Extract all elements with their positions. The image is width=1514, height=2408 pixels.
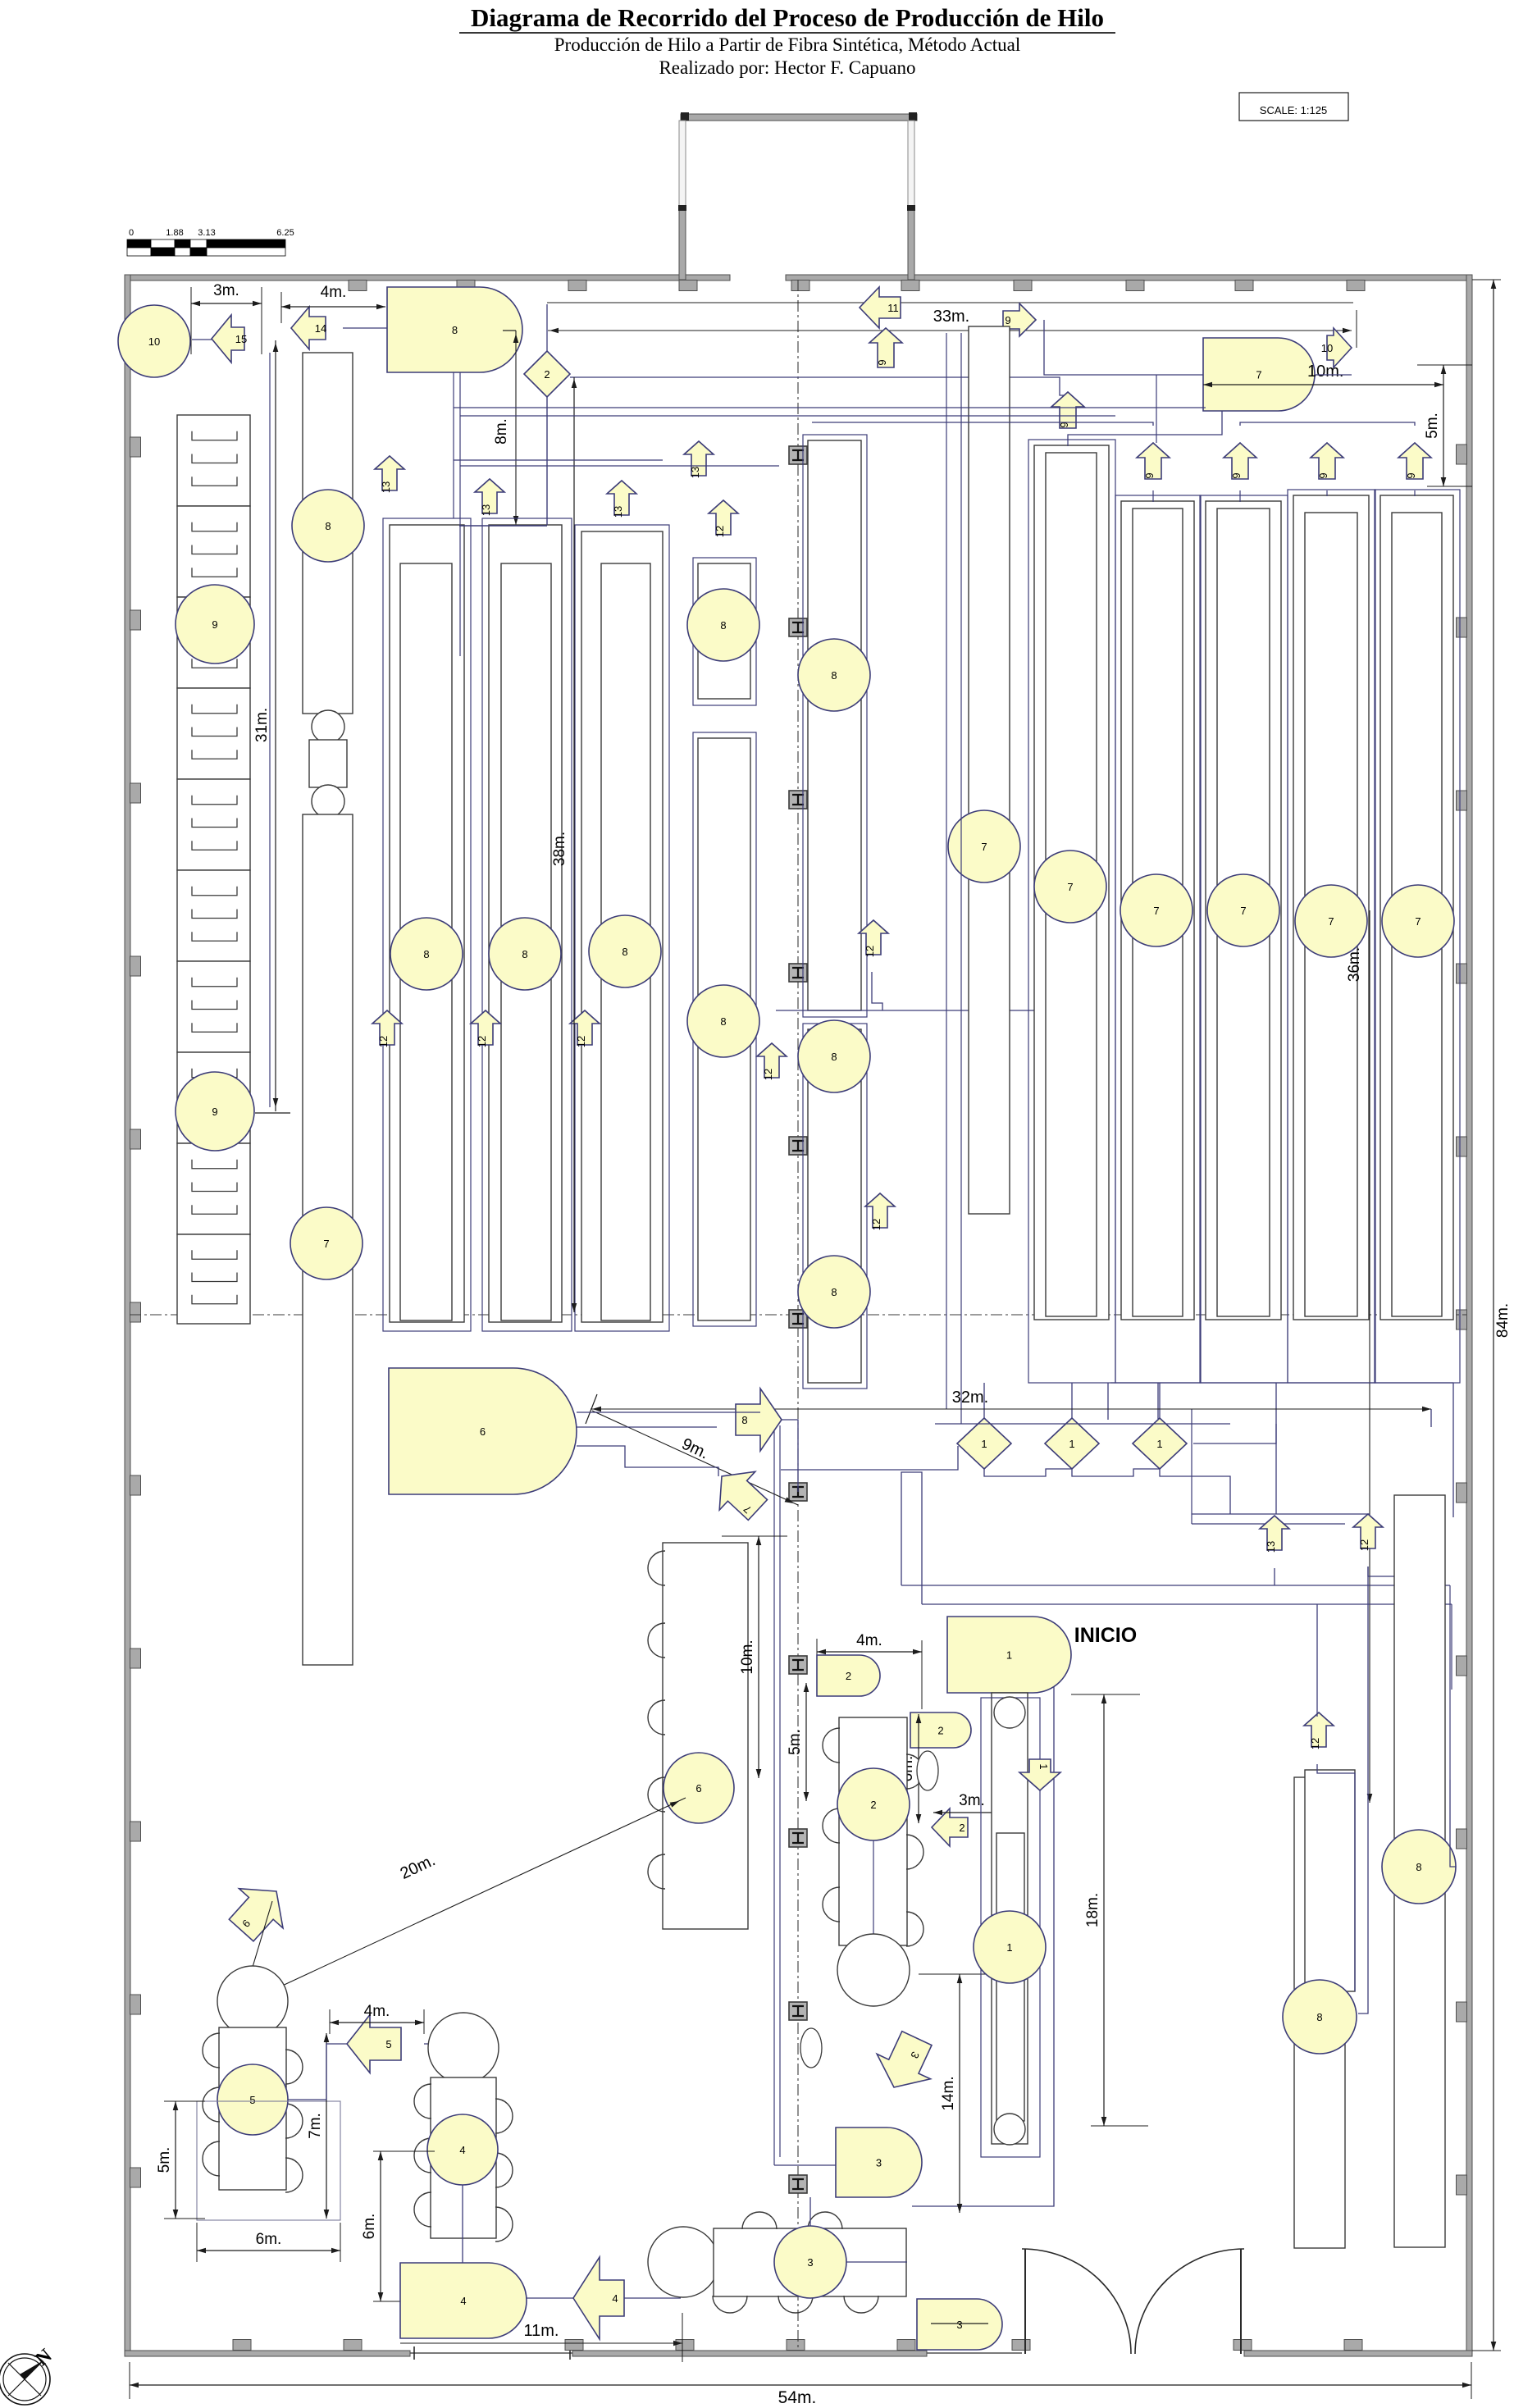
svg-text:11: 11 [887, 302, 899, 314]
svg-text:7: 7 [981, 841, 987, 853]
svg-text:13: 13 [612, 506, 624, 518]
svg-text:8: 8 [720, 619, 726, 632]
svg-text:8: 8 [452, 324, 458, 336]
svg-text:13: 13 [480, 504, 492, 516]
svg-text:8: 8 [720, 1015, 726, 1028]
svg-text:3.13: 3.13 [198, 228, 215, 238]
svg-text:13: 13 [1265, 1541, 1277, 1553]
svg-text:7: 7 [1153, 905, 1159, 917]
svg-text:7: 7 [323, 1238, 329, 1250]
svg-text:6: 6 [695, 1782, 701, 1795]
svg-text:8: 8 [325, 520, 331, 532]
svg-text:8: 8 [423, 948, 429, 960]
svg-text:1.88: 1.88 [166, 228, 183, 238]
svg-text:2: 2 [846, 1670, 851, 1682]
svg-text:9: 9 [212, 1106, 217, 1118]
svg-text:12: 12 [762, 1069, 774, 1080]
svg-text:4: 4 [459, 2144, 465, 2156]
svg-text:5: 5 [249, 2094, 255, 2106]
svg-text:33m.: 33m. [933, 308, 969, 326]
svg-text:12: 12 [476, 1036, 488, 1047]
svg-text:54m.: 54m. [778, 2388, 817, 2407]
svg-text:3: 3 [876, 2157, 882, 2169]
svg-text:5m.: 5m. [1424, 413, 1441, 439]
svg-text:8: 8 [1316, 2011, 1322, 2023]
svg-text:4m.: 4m. [856, 1632, 882, 1649]
svg-text:8m.: 8m. [493, 418, 510, 445]
svg-text:13: 13 [689, 467, 701, 478]
svg-text:3: 3 [807, 2256, 813, 2269]
svg-text:9: 9 [1405, 472, 1417, 478]
svg-text:0: 0 [129, 228, 134, 238]
svg-text:9: 9 [1230, 472, 1243, 478]
svg-text:9: 9 [876, 359, 888, 365]
svg-text:10: 10 [1321, 342, 1333, 354]
svg-text:INICIO: INICIO [1074, 1624, 1137, 1647]
svg-text:8: 8 [1416, 1861, 1421, 1873]
svg-text:Realizado por: Hector F. Capua: Realizado por: Hector F. Capuano [659, 57, 915, 78]
svg-text:2: 2 [959, 1822, 964, 1834]
svg-text:6m.: 6m. [361, 2214, 378, 2240]
svg-text:15: 15 [235, 333, 247, 345]
svg-text:1: 1 [1006, 1649, 1012, 1662]
svg-text:6m.: 6m. [256, 2231, 282, 2248]
svg-text:12: 12 [1358, 1539, 1370, 1551]
svg-text:9: 9 [1317, 472, 1329, 478]
svg-text:36m.: 36m. [1346, 947, 1363, 982]
svg-text:4: 4 [612, 2292, 618, 2305]
svg-text:8: 8 [831, 1051, 837, 1063]
svg-text:31m.: 31m. [253, 708, 271, 742]
svg-text:3: 3 [956, 2319, 962, 2331]
svg-text:12: 12 [575, 1036, 587, 1047]
svg-text:9: 9 [1005, 314, 1010, 326]
svg-text:7m.: 7m. [307, 2113, 324, 2139]
svg-text:Producción de Hilo a Partir de: Producción de Hilo a Partir de Fibra Sin… [554, 34, 1021, 55]
svg-text:Diagrama de Recorrido del Proc: Diagrama de Recorrido del Proceso de Pro… [471, 3, 1104, 32]
svg-text:1: 1 [1069, 1438, 1074, 1450]
svg-text:4m.: 4m. [364, 2003, 390, 2020]
svg-text:8: 8 [522, 948, 527, 960]
svg-text:5m.: 5m. [787, 1729, 804, 1755]
svg-text:12: 12 [377, 1036, 390, 1047]
svg-text:10m.: 10m. [1307, 363, 1343, 381]
svg-text:10: 10 [148, 335, 160, 348]
svg-text:7: 7 [1415, 915, 1421, 928]
svg-text:14m.: 14m. [940, 2076, 957, 2110]
svg-text:13: 13 [380, 481, 392, 493]
svg-text:1: 1 [1006, 1941, 1012, 1954]
svg-text:11m.: 11m. [524, 2322, 559, 2340]
svg-text:10m.: 10m. [739, 1640, 756, 1674]
svg-text:8: 8 [831, 1286, 837, 1298]
svg-text:4: 4 [460, 2295, 466, 2307]
svg-text:1: 1 [1156, 1438, 1162, 1450]
svg-text:12: 12 [1309, 1738, 1321, 1749]
svg-text:12: 12 [864, 946, 876, 957]
svg-text:38m.: 38m. [551, 832, 568, 866]
svg-text:SCALE: 1:125: SCALE: 1:125 [1260, 104, 1327, 116]
svg-text:2: 2 [870, 1799, 876, 1811]
svg-text:6.25: 6.25 [276, 228, 294, 238]
svg-text:3m.: 3m. [213, 282, 239, 299]
svg-text:32m.: 32m. [952, 1389, 988, 1407]
svg-text:8: 8 [622, 946, 627, 958]
svg-text:7: 7 [1328, 915, 1334, 928]
svg-text:4m.: 4m. [321, 284, 347, 301]
svg-text:1: 1 [1037, 1763, 1050, 1769]
svg-text:2: 2 [937, 1725, 943, 1737]
svg-text:1: 1 [981, 1438, 987, 1450]
svg-text:9: 9 [212, 618, 217, 631]
svg-text:18m.: 18m. [1084, 1893, 1101, 1927]
svg-text:14: 14 [315, 322, 326, 335]
svg-text:8: 8 [741, 1414, 747, 1426]
svg-text:12: 12 [714, 526, 726, 537]
svg-text:2: 2 [544, 368, 550, 381]
svg-text:7: 7 [1256, 369, 1261, 381]
svg-text:84m.: 84m. [1494, 1303, 1512, 1338]
svg-text:9: 9 [1143, 472, 1156, 478]
svg-text:12: 12 [870, 1219, 882, 1230]
svg-text:7: 7 [1067, 881, 1073, 893]
svg-text:8: 8 [831, 669, 837, 682]
svg-text:5: 5 [385, 2038, 391, 2050]
svg-text:6: 6 [480, 1425, 486, 1438]
svg-text:5m.: 5m. [156, 2147, 173, 2173]
svg-text:7: 7 [1240, 905, 1246, 917]
